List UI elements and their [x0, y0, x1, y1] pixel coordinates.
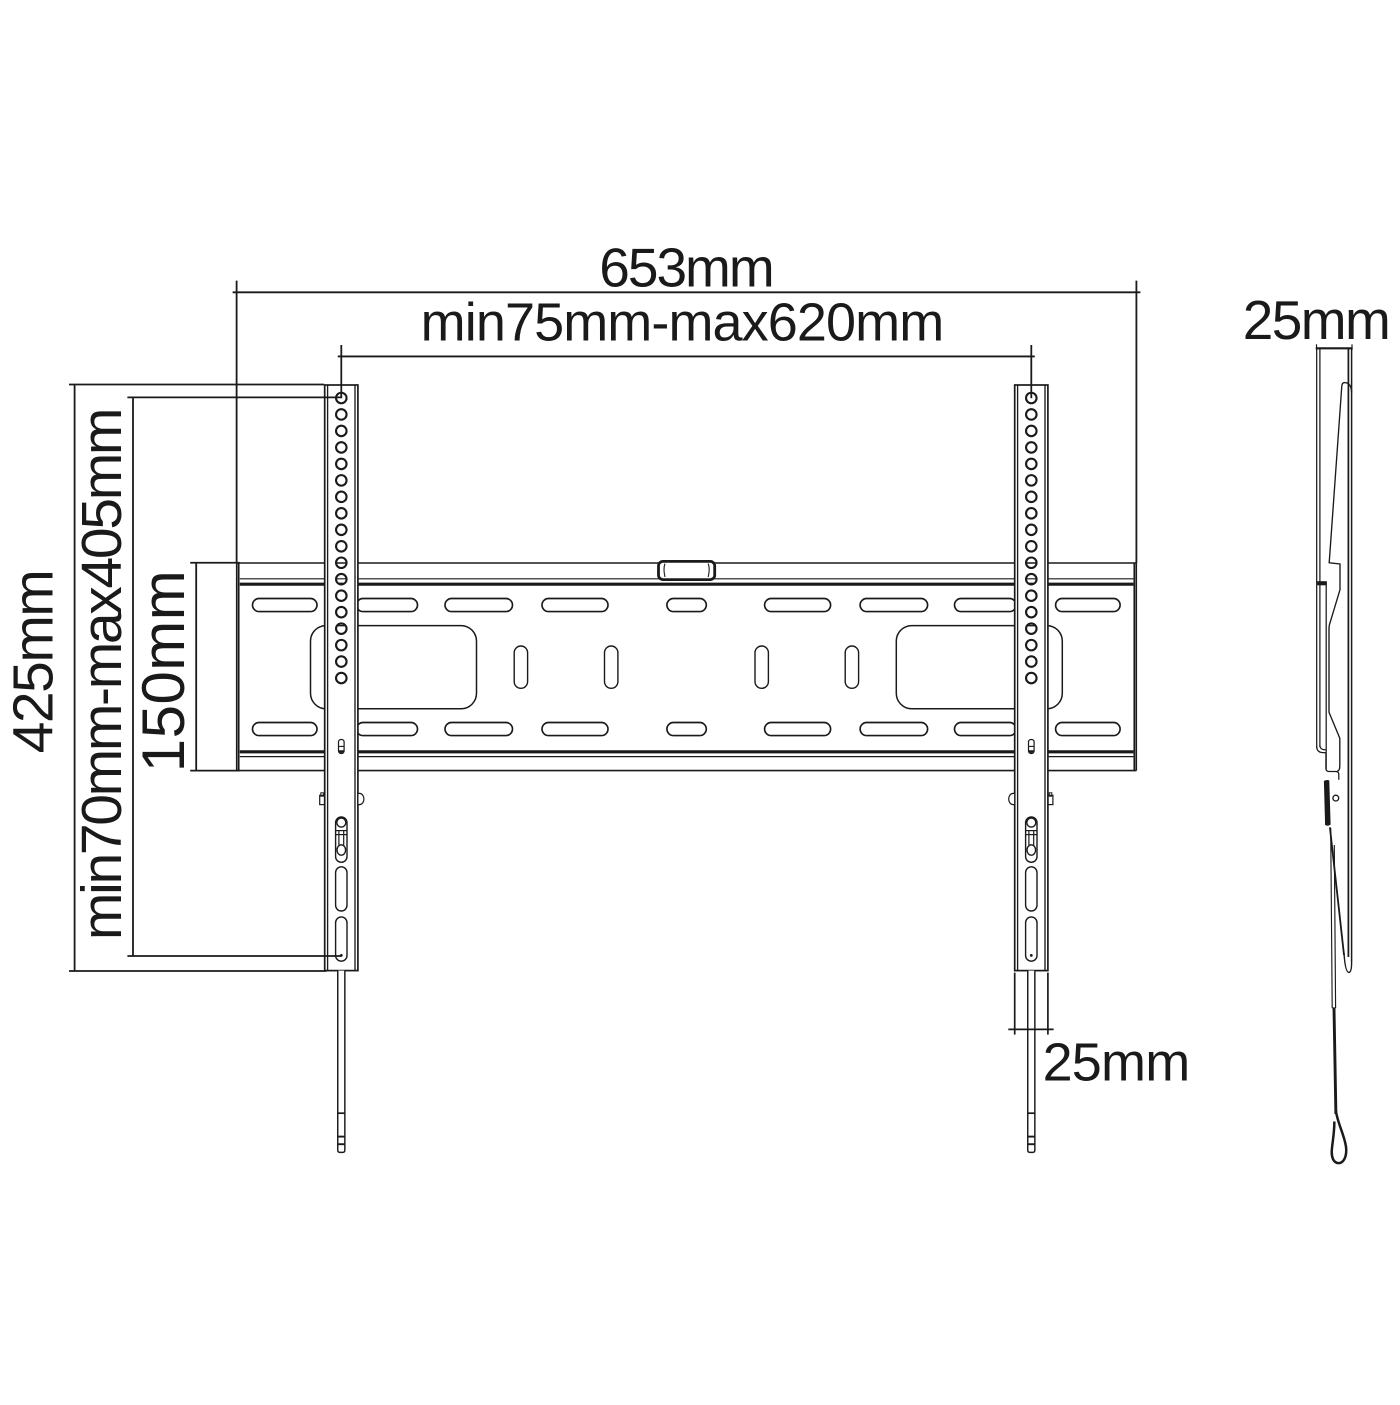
- svg-text:150mm: 150mm: [130, 570, 197, 773]
- svg-text:25mm: 25mm: [1043, 1033, 1190, 1093]
- svg-text:653mm: 653mm: [599, 237, 772, 299]
- svg-text:25mm: 25mm: [1243, 289, 1389, 351]
- svg-text:min75mm-max620mm: min75mm-max620mm: [421, 293, 944, 353]
- svg-text:min70mm-max405mm: min70mm-max405mm: [70, 410, 134, 940]
- svg-text:425mm: 425mm: [2, 571, 66, 754]
